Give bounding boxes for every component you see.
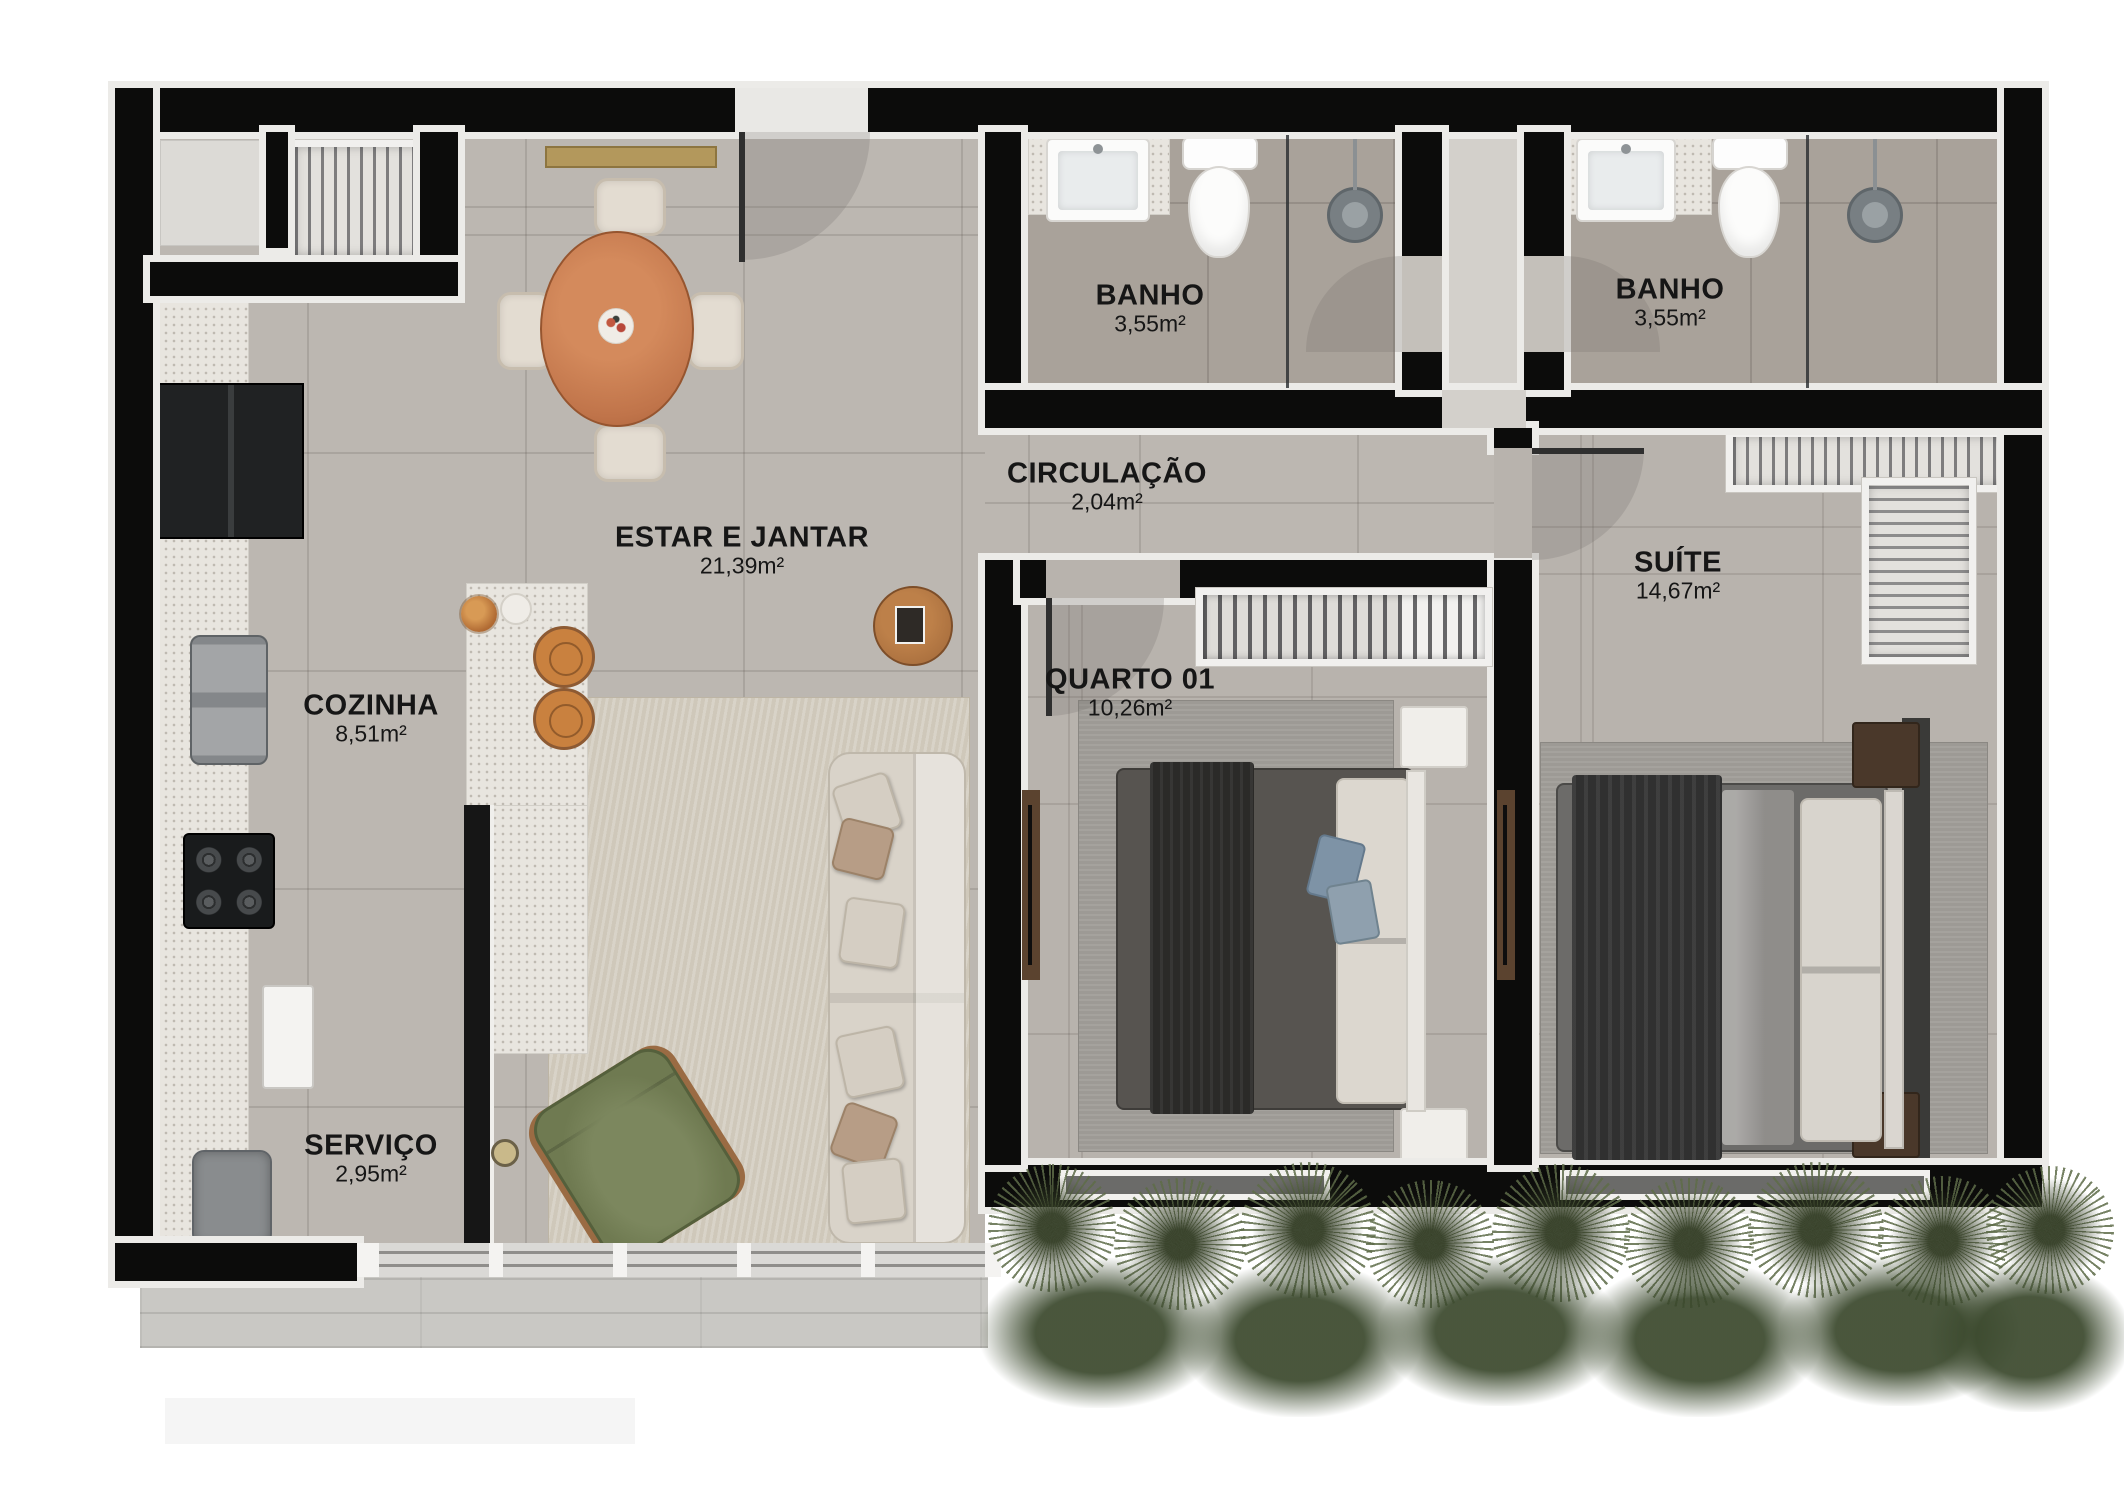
cooktop — [183, 833, 275, 929]
console-table — [545, 146, 717, 168]
room-name: CIRCULAÇÃO — [1007, 458, 1207, 489]
room-area: 21,39m² — [615, 553, 869, 577]
banho1-sink — [1046, 138, 1150, 222]
quarto-nightstand-top — [1400, 706, 1468, 768]
entry-closet — [288, 140, 434, 262]
suite-door-leaf — [1532, 448, 1644, 454]
room-area: 10,26m² — [1045, 695, 1215, 719]
sofa-pillow-6 — [841, 1157, 907, 1225]
hall-threshold — [1442, 390, 1526, 428]
floor-hall — [1442, 132, 1524, 428]
banho2-toilet — [1712, 136, 1788, 264]
banho1-toilet — [1182, 136, 1258, 264]
banho1-shower-glass — [1286, 135, 1289, 388]
wall-suite-door-stub — [1494, 428, 1532, 448]
wall-utility-divider — [266, 132, 288, 248]
room-area: 8,51m² — [303, 721, 439, 745]
wall-bottom-left — [115, 1243, 357, 1281]
room-area: 2,95m² — [304, 1161, 438, 1185]
room-area: 2,04m² — [1007, 489, 1207, 513]
shrub — [1930, 1262, 2124, 1412]
wall-under-utility — [150, 262, 458, 296]
service-door-knob — [491, 1139, 519, 1167]
refrigerator — [158, 383, 304, 539]
bar-stool-1 — [533, 626, 595, 688]
suite-bed-sheet-fold — [1722, 790, 1794, 1145]
kitchen-island-lower — [490, 805, 588, 1054]
suite-bed-pillows — [1800, 798, 1882, 1142]
dining-chair-top — [594, 178, 666, 236]
room-name: COZINHA — [303, 690, 439, 721]
dining-chair-bottom — [594, 424, 666, 482]
label-servico: SERVIÇO 2,95m² — [304, 1130, 438, 1185]
wall-quarto-left — [985, 560, 1021, 1165]
table-centerpiece — [598, 308, 634, 344]
quarto-door-opening — [1046, 560, 1180, 598]
quarto-headboard — [1406, 770, 1426, 1112]
label-quarto-01: QUARTO 01 10,26m² — [1045, 664, 1215, 719]
banho2-shower-glass — [1806, 135, 1809, 388]
label-banho-2: BANHO 3,55m² — [1616, 274, 1725, 329]
room-area: 3,55m² — [1616, 305, 1725, 329]
room-name: SERVIÇO — [304, 1130, 438, 1161]
fruit-bowl — [461, 596, 497, 632]
label-suite: SUÍTE 14,67m² — [1634, 547, 1722, 602]
room-name: BANHO — [1616, 274, 1725, 305]
wall-living-banho1 — [985, 132, 1021, 428]
suite-bed-throw — [1572, 775, 1722, 1160]
floor-utility-shaft — [160, 140, 268, 246]
room-name: BANHO — [1096, 280, 1205, 311]
room-area: 3,55m² — [1096, 311, 1205, 335]
wall-left — [115, 88, 153, 1248]
suite-headboard — [1884, 790, 1904, 1149]
terrace-pavers — [140, 1277, 988, 1348]
quarto-tv-panel — [1022, 790, 1040, 980]
wall-right — [2004, 88, 2042, 1208]
quarto-bookshelf — [1196, 588, 1492, 666]
side-table-book — [895, 606, 925, 644]
sliding-door — [357, 1243, 1001, 1277]
banho1-shower — [1327, 187, 1383, 243]
room-name: QUARTO 01 — [1045, 664, 1215, 695]
entry-door-leaf — [739, 132, 745, 262]
suite-door-opening — [1494, 448, 1532, 558]
banho1-door-opening — [1402, 256, 1442, 352]
banho2-door-opening — [1524, 256, 1564, 352]
laundry-sink — [192, 1150, 272, 1246]
service-door-panel — [464, 805, 494, 1267]
sofa-pillow-3 — [838, 896, 907, 970]
room-name: ESTAR E JANTAR — [615, 522, 869, 553]
label-estar-jantar: ESTAR E JANTAR 21,39m² — [615, 522, 869, 577]
kitchen-sink — [190, 635, 268, 765]
quarto-bed-throw — [1150, 762, 1254, 1114]
room-area: 14,67m² — [1634, 578, 1722, 602]
label-cozinha: COZINHA 8,51m² — [303, 690, 439, 745]
serving-plate — [500, 593, 532, 625]
label-circulacao: CIRCULAÇÃO 2,04m² — [1007, 458, 1207, 513]
quarto-nightstand-bottom — [1400, 1108, 1468, 1166]
floor-plan: ESTAR E JANTAR 21,39m² COZINHA 8,51m² SE… — [0, 0, 2124, 1487]
page: { "plan": { "title": "apartment-floor-pl… — [0, 0, 2124, 1487]
dishwasher — [262, 985, 314, 1089]
sofa-pillow-4 — [834, 1024, 906, 1099]
banho2-sink — [1576, 138, 1676, 222]
entry-door-threshold — [735, 88, 868, 132]
banho2-shower — [1847, 187, 1903, 243]
dining-chair-right — [688, 292, 744, 370]
wall-top — [115, 88, 2042, 132]
watermark-bar — [165, 1398, 635, 1444]
suite-nightstand-top — [1852, 722, 1920, 788]
label-banho-1: BANHO 3,55m² — [1096, 280, 1205, 335]
room-name: SUÍTE — [1634, 547, 1722, 578]
suite-closet-side — [1862, 478, 1976, 664]
bar-stool-2 — [533, 688, 595, 750]
suite-tv-panel — [1497, 790, 1515, 980]
